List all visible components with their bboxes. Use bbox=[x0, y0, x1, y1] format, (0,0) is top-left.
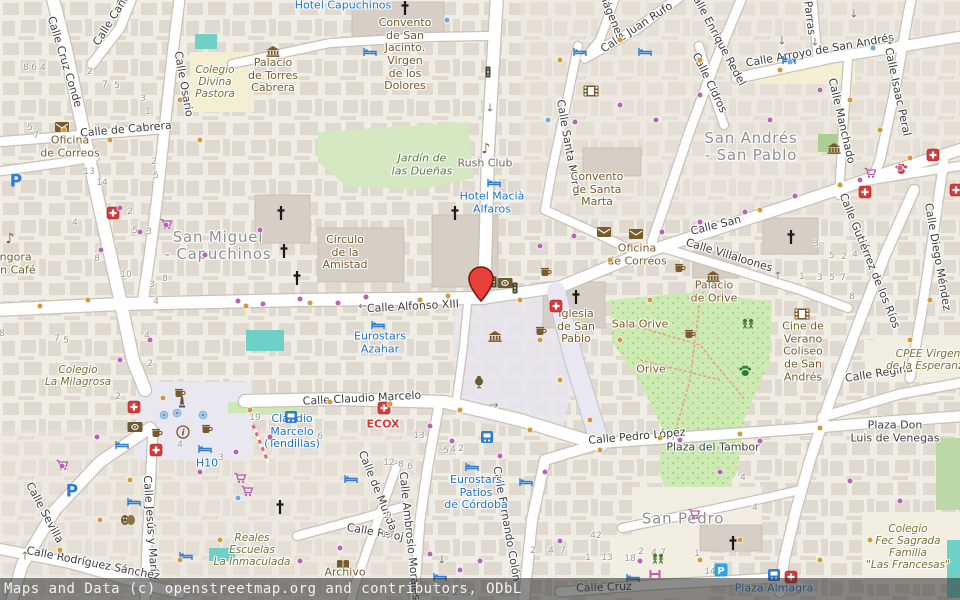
poi-dot bbox=[618, 338, 623, 343]
poi-dot bbox=[898, 166, 903, 171]
poi-dot bbox=[528, 428, 533, 433]
poi-dot bbox=[908, 338, 913, 343]
poi-dot bbox=[738, 432, 743, 437]
oneway-arrow-icon: ↓ bbox=[810, 36, 819, 49]
poi-dot bbox=[538, 244, 543, 249]
poi-dot bbox=[388, 402, 393, 407]
poi-dot bbox=[638, 559, 643, 564]
poi-dot bbox=[418, 298, 423, 303]
poi-dot bbox=[818, 426, 823, 431]
poi-dot bbox=[58, 548, 63, 553]
poi-dot bbox=[698, 58, 703, 63]
attribution-bar: Maps and Data (c) openstreetmap.org and … bbox=[0, 578, 960, 600]
poi-dot bbox=[86, 298, 91, 303]
poi-dot bbox=[118, 358, 123, 363]
oneway-arrow-icon: ↓ bbox=[885, 35, 894, 48]
poi-dot bbox=[768, 118, 773, 123]
oneway-arrow-icon: → bbox=[489, 399, 498, 412]
poi-dot bbox=[868, 538, 873, 543]
poi-dot bbox=[203, 253, 208, 258]
poi-dot bbox=[248, 408, 253, 413]
poi-dot bbox=[543, 470, 548, 475]
poi-dot bbox=[743, 210, 748, 215]
poi-dot bbox=[818, 88, 823, 93]
poi-dot bbox=[62, 128, 67, 133]
oneway-arrow-icon: ↑ bbox=[773, 270, 782, 283]
poi-dot bbox=[95, 435, 100, 440]
poi-dot bbox=[928, 298, 933, 303]
poi-dot bbox=[718, 470, 723, 475]
poi-dot bbox=[608, 258, 613, 263]
poi-dot bbox=[498, 454, 503, 459]
poi-dot bbox=[793, 194, 798, 199]
oneway-arrow-icon: ↓ bbox=[777, 35, 786, 48]
poi-dot bbox=[588, 418, 593, 423]
poi-dot bbox=[258, 228, 263, 233]
poi-dot bbox=[336, 301, 341, 306]
poi-dot bbox=[98, 518, 103, 523]
poi-dot bbox=[838, 183, 843, 188]
poi-dot bbox=[898, 499, 903, 504]
poi-dot bbox=[660, 230, 665, 235]
poi-dot bbox=[138, 230, 143, 235]
poi-dot bbox=[308, 301, 313, 306]
poi-dot bbox=[698, 558, 703, 563]
poi-dot bbox=[858, 178, 863, 183]
poi-dot bbox=[618, 103, 623, 108]
poi-dot bbox=[38, 304, 43, 309]
location-marker-pin[interactable] bbox=[468, 266, 494, 306]
poi-dot bbox=[871, 46, 876, 51]
poi-dot bbox=[658, 436, 663, 441]
poi-dot bbox=[648, 298, 653, 303]
poi-dot bbox=[738, 538, 743, 543]
poi-dot bbox=[261, 302, 266, 307]
poi-dot bbox=[236, 496, 241, 501]
poi-dot bbox=[546, 118, 551, 123]
oneway-arrow-icon: ↑ bbox=[20, 550, 29, 563]
oneway-arrow-icon: ↓ bbox=[437, 554, 446, 567]
poi-dot bbox=[538, 338, 543, 343]
poi-dot bbox=[268, 435, 273, 440]
poi-dot bbox=[338, 546, 343, 551]
poi-dot bbox=[572, 234, 577, 239]
poi-dot bbox=[848, 98, 853, 103]
poi-dot bbox=[148, 338, 153, 343]
poi-dot bbox=[698, 220, 703, 225]
poi-dot bbox=[573, 120, 578, 125]
poi-dot bbox=[108, 138, 113, 143]
poi-dot bbox=[654, 118, 659, 123]
poi-dot bbox=[458, 568, 463, 573]
poi-dot bbox=[234, 450, 239, 455]
poi-dot bbox=[758, 208, 763, 213]
map-canvas[interactable]: San Miguel - CapuchinosSan Andrés - San … bbox=[0, 0, 960, 600]
attribution-text: Maps and Data (c) openstreetmap.org and … bbox=[4, 581, 522, 597]
poi-dot bbox=[244, 304, 249, 309]
poi-dot bbox=[478, 559, 483, 564]
poi-dot bbox=[128, 478, 133, 483]
poi-dot bbox=[428, 424, 433, 429]
poi-dot bbox=[446, 294, 451, 299]
poi-dot bbox=[328, 400, 333, 405]
poi-dot bbox=[60, 464, 65, 469]
poi-dot bbox=[178, 98, 183, 103]
poi-dot bbox=[298, 297, 303, 302]
poi-dot bbox=[778, 68, 783, 73]
poi-dot bbox=[818, 558, 823, 563]
poi-dot bbox=[218, 538, 223, 543]
poi-dot bbox=[878, 128, 883, 133]
poi-dot bbox=[848, 479, 853, 484]
poi-dot bbox=[788, 60, 793, 65]
poi-dot bbox=[908, 156, 913, 161]
poi-dot bbox=[598, 448, 603, 453]
poi-dot bbox=[558, 58, 563, 63]
poi-dot bbox=[236, 299, 241, 304]
poi-dot bbox=[558, 539, 563, 544]
poi-dot bbox=[99, 248, 104, 253]
poi-dot bbox=[164, 223, 169, 228]
poi-dot bbox=[178, 558, 183, 563]
oneway-arrow-icon: ↓ bbox=[849, 8, 858, 21]
oneway-arrow-icon: ← bbox=[358, 300, 367, 313]
poi-dot bbox=[678, 438, 683, 443]
poi-dot bbox=[364, 295, 369, 300]
poi-dot bbox=[161, 396, 166, 401]
poi-dot bbox=[450, 439, 455, 444]
poi-dot bbox=[758, 439, 763, 444]
poi-dot bbox=[618, 38, 623, 43]
poi-dot bbox=[445, 18, 450, 23]
poi-dot bbox=[198, 138, 203, 143]
poi-dot bbox=[518, 298, 523, 303]
poi-dot bbox=[428, 552, 433, 557]
poi-dot bbox=[118, 206, 123, 211]
poi-dot bbox=[458, 408, 463, 413]
poi-dot bbox=[698, 93, 703, 98]
poi-dot bbox=[298, 559, 303, 564]
poi-dot bbox=[198, 470, 203, 475]
oneway-arrow-icon: ↓ bbox=[485, 102, 494, 115]
poi-dot bbox=[558, 378, 563, 383]
